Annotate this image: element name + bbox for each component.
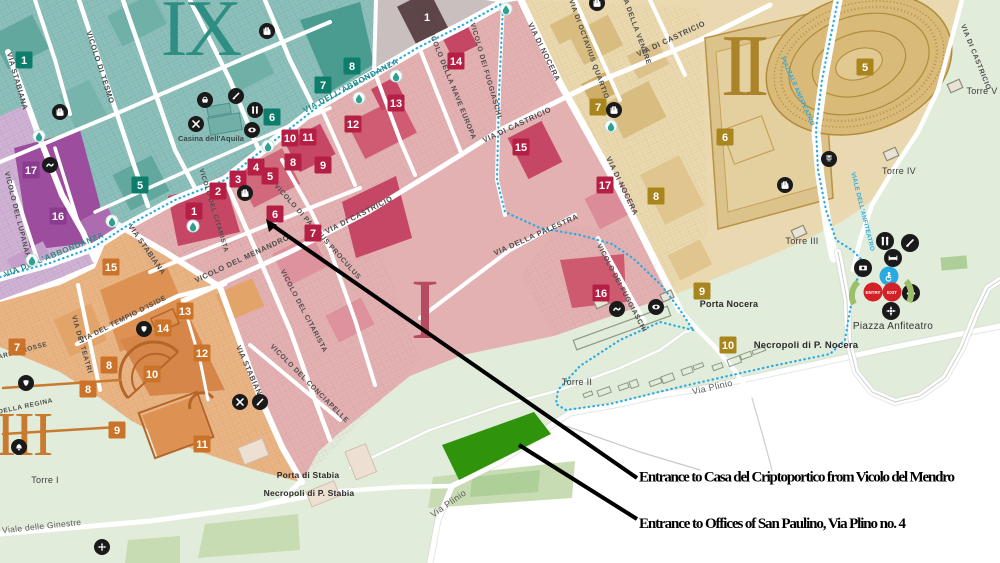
- svg-text:17: 17: [599, 180, 611, 192]
- svg-text:12: 12: [347, 119, 359, 131]
- svg-text:Necropoli di P. Nocera: Necropoli di P. Nocera: [754, 340, 859, 351]
- svg-text:Entrance to Offices of San Pau: Entrance to Offices of San Paulino, Via …: [639, 516, 907, 532]
- svg-text:Torre III: Torre III: [785, 236, 818, 246]
- svg-text:14: 14: [157, 323, 170, 335]
- svg-text:3: 3: [235, 174, 241, 186]
- svg-text:10: 10: [146, 369, 158, 381]
- svg-text:Entrance to Casa del Criptopor: Entrance to Casa del Criptoportico from …: [639, 470, 955, 486]
- svg-text:Porta di Stabia: Porta di Stabia: [277, 470, 340, 480]
- svg-text:6: 6: [272, 209, 278, 221]
- svg-text:11: 11: [196, 439, 208, 451]
- svg-text:7: 7: [595, 102, 601, 114]
- svg-text:EXIT: EXIT: [887, 290, 897, 295]
- svg-text:1: 1: [191, 206, 197, 218]
- svg-text:Torre I: Torre I: [31, 475, 59, 485]
- svg-text:1: 1: [424, 12, 430, 24]
- svg-text:10: 10: [722, 340, 734, 352]
- svg-text:5: 5: [267, 171, 273, 183]
- svg-text:14: 14: [450, 56, 463, 68]
- svg-text:13: 13: [390, 98, 402, 110]
- svg-text:8: 8: [653, 191, 659, 203]
- svg-text:IX: IX: [161, 0, 242, 73]
- svg-text:15: 15: [105, 262, 117, 274]
- svg-text:7: 7: [320, 80, 326, 92]
- svg-text:15: 15: [515, 142, 527, 154]
- svg-text:16: 16: [595, 288, 607, 300]
- svg-text:9: 9: [114, 425, 120, 437]
- svg-text:Piazza Anfiteatro: Piazza Anfiteatro: [853, 321, 933, 332]
- svg-text:Torre IV: Torre IV: [882, 166, 916, 176]
- svg-text:13: 13: [179, 306, 191, 318]
- svg-text:Porta Nocera: Porta Nocera: [700, 299, 759, 309]
- svg-text:Necropoli di P. Stabia: Necropoli di P. Stabia: [264, 488, 355, 498]
- svg-text:Casina dell'Aquila: Casina dell'Aquila: [178, 134, 245, 143]
- svg-text:2: 2: [215, 186, 221, 198]
- svg-text:Torre V: Torre V: [966, 86, 997, 96]
- svg-text:7: 7: [14, 342, 20, 354]
- svg-text:1: 1: [21, 55, 27, 67]
- svg-text:5: 5: [137, 180, 143, 192]
- svg-text:12: 12: [196, 348, 208, 360]
- svg-text:17: 17: [25, 165, 37, 177]
- svg-text:8: 8: [290, 157, 296, 169]
- svg-text:11: 11: [302, 132, 314, 144]
- svg-text:ENTRY: ENTRY: [865, 290, 880, 295]
- svg-text:6: 6: [722, 132, 728, 144]
- svg-text:4: 4: [253, 162, 260, 174]
- svg-text:9: 9: [320, 160, 326, 172]
- svg-text:10: 10: [284, 133, 296, 145]
- svg-text:5: 5: [862, 62, 868, 74]
- svg-text:8: 8: [85, 384, 91, 396]
- svg-text:I: I: [411, 261, 440, 357]
- svg-text:Torre II: Torre II: [562, 377, 592, 387]
- svg-text:8: 8: [349, 61, 355, 73]
- svg-text:6: 6: [269, 112, 275, 124]
- svg-text:7: 7: [310, 228, 316, 240]
- svg-text:8: 8: [106, 360, 112, 372]
- svg-text:9: 9: [699, 286, 705, 298]
- svg-text:16: 16: [52, 211, 64, 223]
